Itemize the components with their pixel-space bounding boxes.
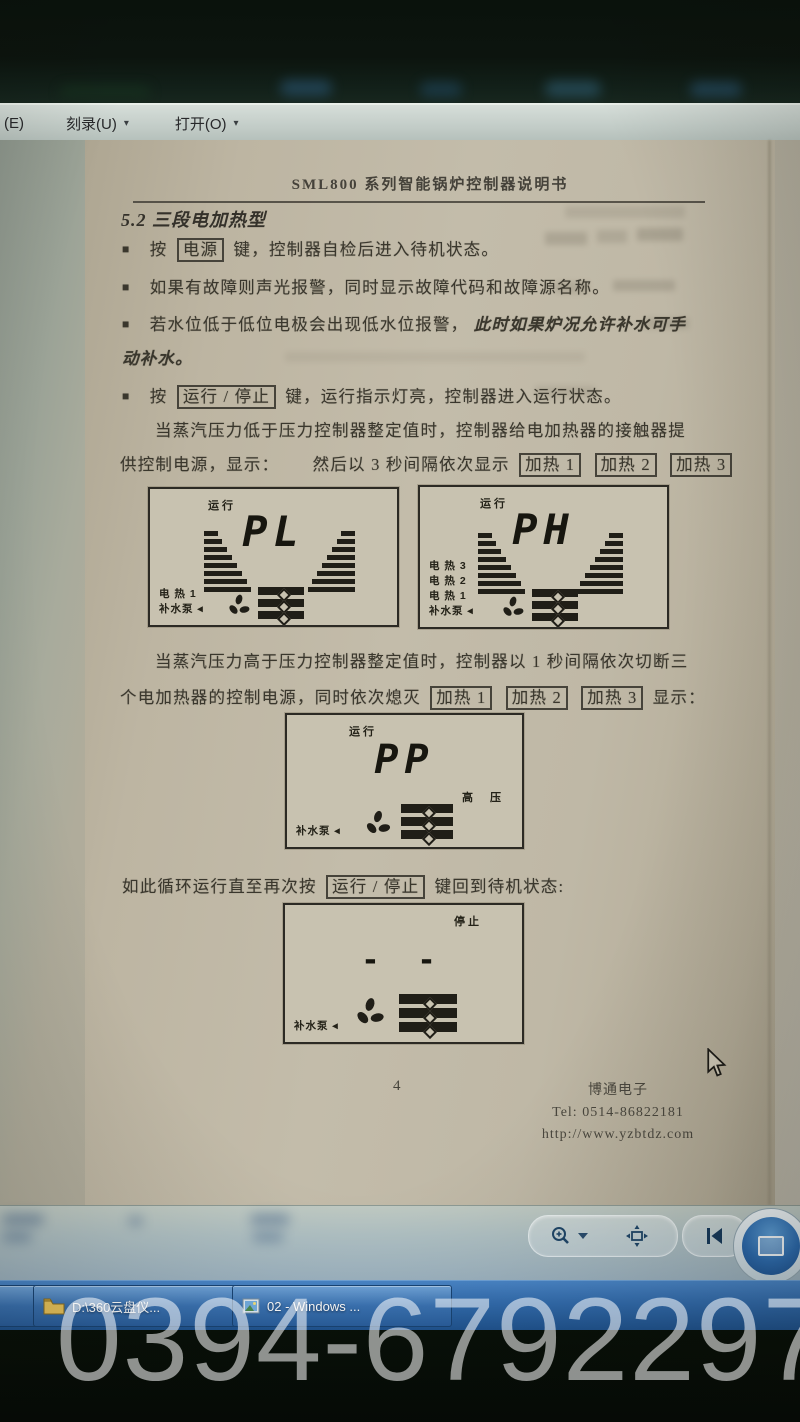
lcd-left-labels: 电 热 1 补水泵 ◂ <box>159 587 204 617</box>
text-segment: 键回到待机状态: <box>435 877 565 896</box>
ghost-text-smudge <box>285 352 585 362</box>
text-segment: 如此循环运行直至再次按 <box>122 877 317 896</box>
lcd-label-feedpump: 补水泵 ◂ <box>159 602 204 617</box>
key-run-stop: 运行 / 停止 <box>326 875 425 899</box>
heater-grid-icon <box>399 994 457 1032</box>
bullet-line-lowwater-cont: 动补水。 <box>122 345 193 369</box>
text-segment: 然后以 3 秒间隔依次显示 <box>313 455 510 474</box>
chevron-down-icon: ▾ <box>124 118 129 129</box>
key-heat3: 加热 3 <box>581 686 643 710</box>
bullet-line-run: ■ 按 运行 / 停止 键，运行指示灯亮，控制器进入运行状态。 <box>122 383 622 409</box>
bullet-line-power: ■ 按 电源 键，控制器自检后进入待机状态。 <box>122 236 499 262</box>
publisher-tel: Tel: 0514-86822181 <box>523 1102 713 1124</box>
paragraph-high-pressure-line1: 当蒸汽压力高于压力控制器整定值时，控制器以 1 秒间隔依次切断三 <box>155 648 688 672</box>
toolbar-reflection <box>2 1232 32 1242</box>
background-reflection <box>280 80 332 96</box>
key-power: 电源 <box>177 238 224 262</box>
lcd-status-label: 停止 <box>454 913 482 929</box>
ghost-text-smudge <box>565 206 685 218</box>
chevron-down-icon: ▾ <box>234 118 239 129</box>
lcd-left-labels: 补水泵 ◂ <box>296 824 341 839</box>
document-header-title: SML800 系列智能锅炉控制器说明书 <box>85 173 775 194</box>
fan-icon <box>226 593 252 619</box>
menu-item-label: 刻录(U) <box>66 113 117 134</box>
text-segment: 供控制电源，显示： <box>120 455 279 474</box>
slideshow-icon <box>758 1236 784 1256</box>
key-heat1: 加热 1 <box>519 453 581 477</box>
ghost-text-smudge <box>613 280 675 291</box>
lcd-label-feedpump: 补水泵 ◂ <box>296 824 341 839</box>
background-reflection <box>420 82 462 97</box>
paragraph-low-pressure-line1: 当蒸汽压力低于压力控制器整定值时，控制器给电加热器的接触器提 <box>155 417 686 441</box>
lcd-label-heater1: 电 热 1 <box>159 587 204 602</box>
zoom-icon[interactable] <box>549 1224 573 1248</box>
text-segment: 如果有故障则声光报警，同时显示故障代码和故障源名称。 <box>150 278 610 297</box>
header-rule <box>133 201 705 203</box>
toolbar-reflection <box>250 1214 290 1225</box>
ghost-text-smudge <box>545 232 587 245</box>
bullet-icon: ■ <box>122 280 130 294</box>
lcd-bargraph-right <box>308 531 355 592</box>
background-reflection <box>545 81 601 97</box>
actual-size-icon[interactable] <box>625 1224 649 1248</box>
key-heat3: 加热 3 <box>670 453 732 477</box>
lcd-value: PH <box>420 505 667 554</box>
chevron-down-icon[interactable] <box>577 1232 589 1240</box>
text-segment: 按 <box>150 240 168 259</box>
toolbar-reflection <box>2 1214 44 1225</box>
viewer-toolbar <box>0 1205 800 1281</box>
toolbar-reflection <box>252 1232 284 1242</box>
lcd-bargraph-right <box>576 533 623 594</box>
publisher-block: 博通电子 Tel: 0514-86822181 http://www.yzbtd… <box>523 1080 713 1146</box>
lcd-label-high-pressure: 高 压 <box>462 789 508 805</box>
lcd-bargraph-left <box>478 533 525 594</box>
key-heat1: 加热 1 <box>430 686 492 710</box>
screen: (E) 刻录(U) ▾ 打开(O) ▾ SML800 系列智能锅炉控制器说明书 … <box>0 0 800 1422</box>
heater-grid-icon <box>401 804 453 839</box>
watermark-phone-number: 0394-6792297 <box>56 1272 800 1408</box>
key-heat2: 加热 2 <box>506 686 568 710</box>
lcd-value: PP <box>287 737 522 783</box>
text-segment: 个电加热器的控制电源，同时依次熄灭 <box>120 688 421 707</box>
text-segment-emphasis: 此时如果炉况允许补水可手 <box>474 315 686 334</box>
ghost-text-smudge <box>597 230 627 243</box>
toolbar-reflection <box>128 1216 143 1226</box>
lcd-left-labels: 电 热 3 电 热 2 电 热 1 补水泵 ◂ <box>429 559 474 619</box>
fan-icon <box>353 996 387 1030</box>
text-segment: 显示： <box>653 688 706 707</box>
background-reflection <box>60 86 150 98</box>
previous-icon[interactable] <box>703 1225 727 1247</box>
bullet-icon: ■ <box>122 317 130 331</box>
monitor-background <box>0 0 800 103</box>
bullet-line-lowwater: ■ 若水位低于低位电极会出现低水位报警， 此时如果炉况允许补水可手 <box>122 311 686 335</box>
key-run-stop: 运行 / 停止 <box>177 385 276 409</box>
lcd-label-feedpump: 补水泵 ◂ <box>429 604 474 619</box>
lcd-display-standby: 停止 - - 补水泵 ◂ <box>283 903 524 1044</box>
lcd-display-pl: 运行 PL 电 热 1 补水泵 ◂ <box>148 487 399 627</box>
lcd-label-heater2: 电 热 2 <box>429 574 474 589</box>
menu-item-burn[interactable]: 刻录(U) ▾ <box>52 105 143 142</box>
text-segment: 键，控制器自检后进入待机状态。 <box>234 240 500 259</box>
lcd-label-heater1: 电 热 1 <box>429 589 474 604</box>
bullet-icon: ■ <box>122 242 130 256</box>
bullet-line-fault: ■ 如果有故障则声光报警，同时显示故障代码和故障源名称。 <box>122 274 610 298</box>
menu-bar: (E) 刻录(U) ▾ 打开(O) ▾ <box>0 103 800 143</box>
document-page: SML800 系列智能锅炉控制器说明书 5.2 三段电加热型 ■ 按 电源 键，… <box>85 140 775 1205</box>
heater-grid-icon <box>532 589 578 621</box>
paragraph-low-pressure-line2: 供控制电源，显示： 然后以 3 秒间隔依次显示 加热 1 加热 2 加热 3 <box>120 451 736 477</box>
lcd-bargraph-left <box>204 531 251 592</box>
bullet-icon: ■ <box>122 389 130 403</box>
text-segment: 若水位低于低位电极会出现低水位报警， <box>150 315 469 334</box>
menu-item-label: 打开(O) <box>175 113 227 134</box>
lcd-display-ph: 运行 PH 电 热 3 电 热 2 电 热 1 <box>418 485 669 629</box>
menu-item-e[interactable]: (E) <box>0 105 38 142</box>
mouse-cursor <box>706 1048 728 1078</box>
background-reflection <box>690 82 742 97</box>
lcd-value: PL <box>150 507 397 556</box>
menu-item-label: (E) <box>4 115 24 132</box>
text-segment: 按 <box>150 387 168 406</box>
menu-item-open[interactable]: 打开(O) ▾ <box>161 105 253 142</box>
paragraph-loop: 如此循环运行直至再次按 运行 / 停止 键回到待机状态: <box>122 873 564 899</box>
lcd-label-heater3: 电 热 3 <box>429 559 474 574</box>
section-heading: 5.2 三段电加热型 <box>121 206 266 232</box>
photo-viewer-canvas: SML800 系列智能锅炉控制器说明书 5.2 三段电加热型 ■ 按 电源 键，… <box>0 140 800 1205</box>
lcd-left-labels: 补水泵 ◂ <box>294 1019 339 1034</box>
publisher-name: 博通电子 <box>523 1080 713 1102</box>
paragraph-high-pressure-line2: 个电加热器的控制电源，同时依次熄灭 加热 1 加热 2 加热 3 显示： <box>120 684 706 710</box>
lcd-display-pp: 运行 PP 高 压 补水泵 ◂ <box>285 713 524 849</box>
heater-grid-icon <box>258 587 304 619</box>
key-heat2: 加热 2 <box>595 453 657 477</box>
lcd-label-feedpump: 补水泵 ◂ <box>294 1019 339 1034</box>
publisher-url: http://www.yzbtdz.com <box>523 1124 713 1146</box>
text-segment: 键，运行指示灯亮，控制器进入运行状态。 <box>285 387 621 406</box>
zoom-controls-group <box>528 1215 678 1257</box>
slideshow-button-inner <box>742 1217 800 1275</box>
page-number: 4 <box>393 1078 401 1095</box>
ghost-text-smudge <box>637 228 683 241</box>
lcd-value: - - <box>285 943 522 978</box>
fan-icon <box>363 809 393 839</box>
fan-icon <box>500 595 526 621</box>
